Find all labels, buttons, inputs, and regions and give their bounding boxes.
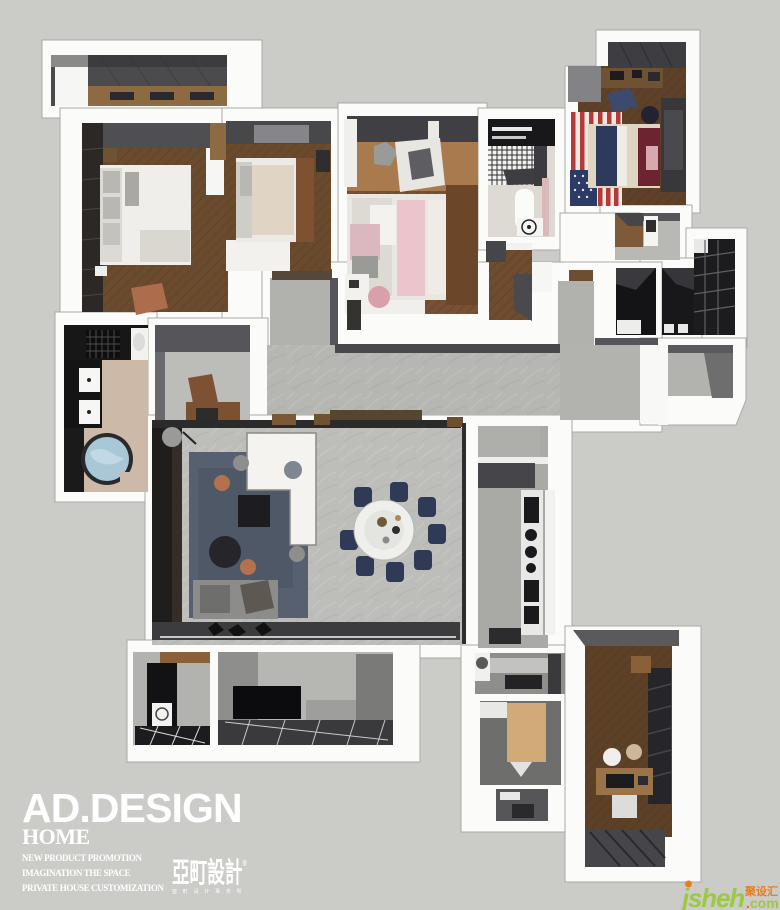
svg-text:.com: .com [746, 895, 779, 910]
